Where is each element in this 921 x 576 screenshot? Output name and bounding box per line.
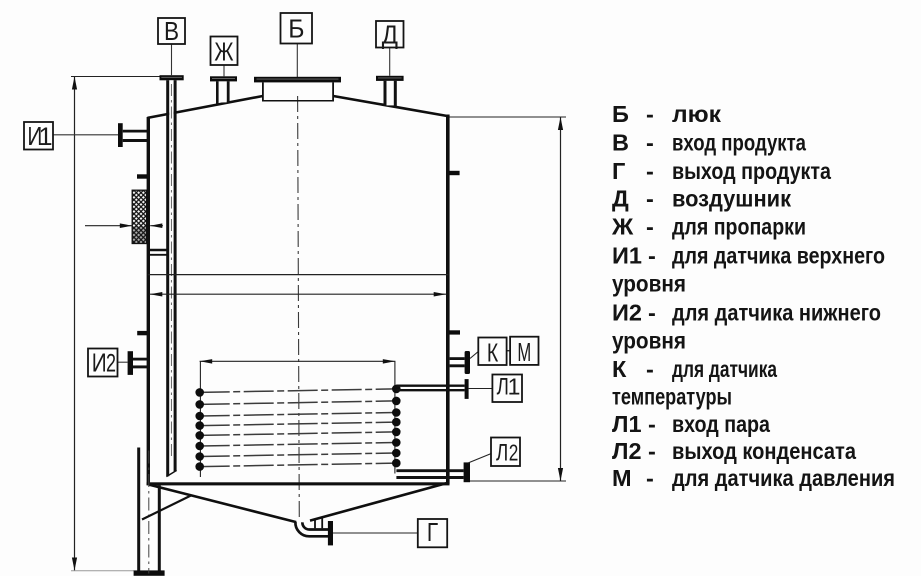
svg-text:-: -: [646, 130, 654, 156]
svg-text:Ж: Ж: [611, 214, 634, 240]
svg-text:для датчика нижнего: для датчика нижнего: [672, 300, 881, 326]
svg-text:Д: Д: [382, 21, 398, 50]
svg-text:Г: Г: [612, 158, 625, 184]
svg-text:Ж: Ж: [214, 37, 233, 66]
svg-text:для пропарки: для пропарки: [672, 214, 806, 240]
svg-text:вход пара: вход пара: [672, 411, 771, 437]
svg-text:вход продукта: вход продукта: [672, 130, 807, 156]
svg-text:выход конденсата: выход конденсата: [672, 438, 857, 464]
svg-text:Д: Д: [612, 186, 629, 212]
svg-text:для датчика: для датчика: [672, 356, 778, 382]
svg-text:Б: Б: [612, 101, 629, 127]
svg-text:-: -: [646, 158, 654, 184]
svg-text:И2: И2: [612, 300, 642, 326]
svg-text:1: 1: [508, 374, 521, 400]
svg-text:-: -: [646, 186, 654, 212]
svg-text:-: -: [646, 214, 654, 240]
svg-text:температуры: температуры: [612, 384, 732, 410]
svg-text:люк: люк: [672, 101, 721, 127]
svg-text:Г: Г: [427, 518, 438, 547]
svg-text:В: В: [164, 18, 179, 47]
svg-text:-: -: [648, 438, 656, 464]
svg-text:-: -: [648, 300, 656, 326]
svg-text:выход продукта: выход продукта: [672, 158, 832, 184]
svg-text:М: М: [517, 337, 531, 367]
svg-text:уровня: уровня: [612, 271, 686, 297]
svg-text:Б: Б: [288, 15, 304, 44]
svg-text:Л: Л: [496, 439, 508, 466]
svg-text:Л1: Л1: [612, 411, 642, 437]
svg-text:уровня: уровня: [612, 328, 686, 354]
svg-text:В: В: [612, 130, 629, 156]
svg-text:Л2: Л2: [612, 438, 642, 464]
svg-text:И1: И1: [612, 243, 642, 269]
svg-text:-: -: [646, 356, 654, 382]
svg-text:2: 2: [106, 349, 116, 378]
svg-text:М: М: [612, 465, 632, 491]
svg-text:-: -: [646, 101, 654, 127]
svg-text:воздушник: воздушник: [672, 186, 791, 212]
svg-text:для датчика давления: для датчика давления: [672, 465, 895, 491]
svg-text:1: 1: [39, 123, 53, 151]
svg-text:К: К: [612, 356, 627, 382]
svg-text:-: -: [648, 411, 656, 437]
svg-text:-: -: [648, 243, 656, 269]
svg-text:К: К: [487, 338, 499, 367]
svg-text:для датчика верхнего: для датчика верхнего: [672, 243, 885, 269]
svg-text:2: 2: [509, 441, 519, 466]
svg-text:-: -: [646, 465, 654, 491]
svg-text:И: И: [92, 348, 107, 377]
